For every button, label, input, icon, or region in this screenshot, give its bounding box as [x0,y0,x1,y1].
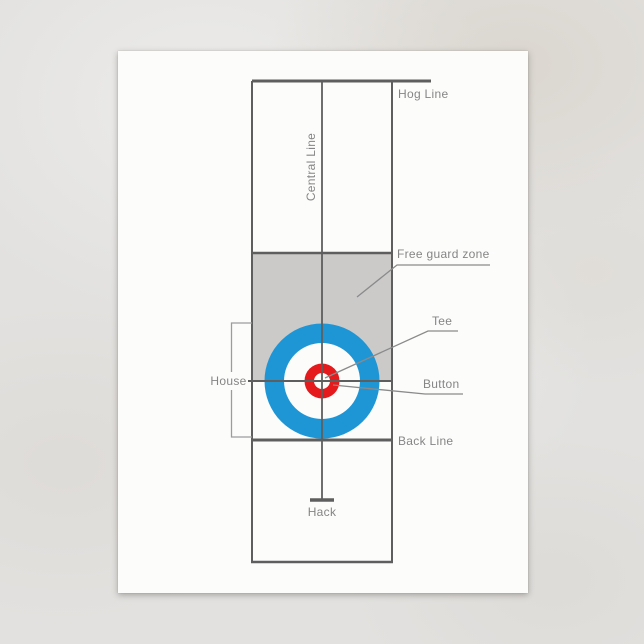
free-guard-zone-label: Free guard zone [397,247,490,261]
tee-label: Tee [432,314,452,328]
back-line-label: Back Line [398,434,453,448]
button-label: Button [423,377,460,391]
house-label: House [210,374,246,388]
marble-background: Hog Line Central Line Free guard zone Te… [0,0,644,644]
central-line-label: Central Line [304,133,318,201]
postcard: Hog Line Central Line Free guard zone Te… [118,51,528,593]
hack-label: Hack [308,505,337,519]
hog-line-label: Hog Line [398,87,448,101]
curling-rink-diagram: Hog Line Central Line Free guard zone Te… [118,51,528,593]
